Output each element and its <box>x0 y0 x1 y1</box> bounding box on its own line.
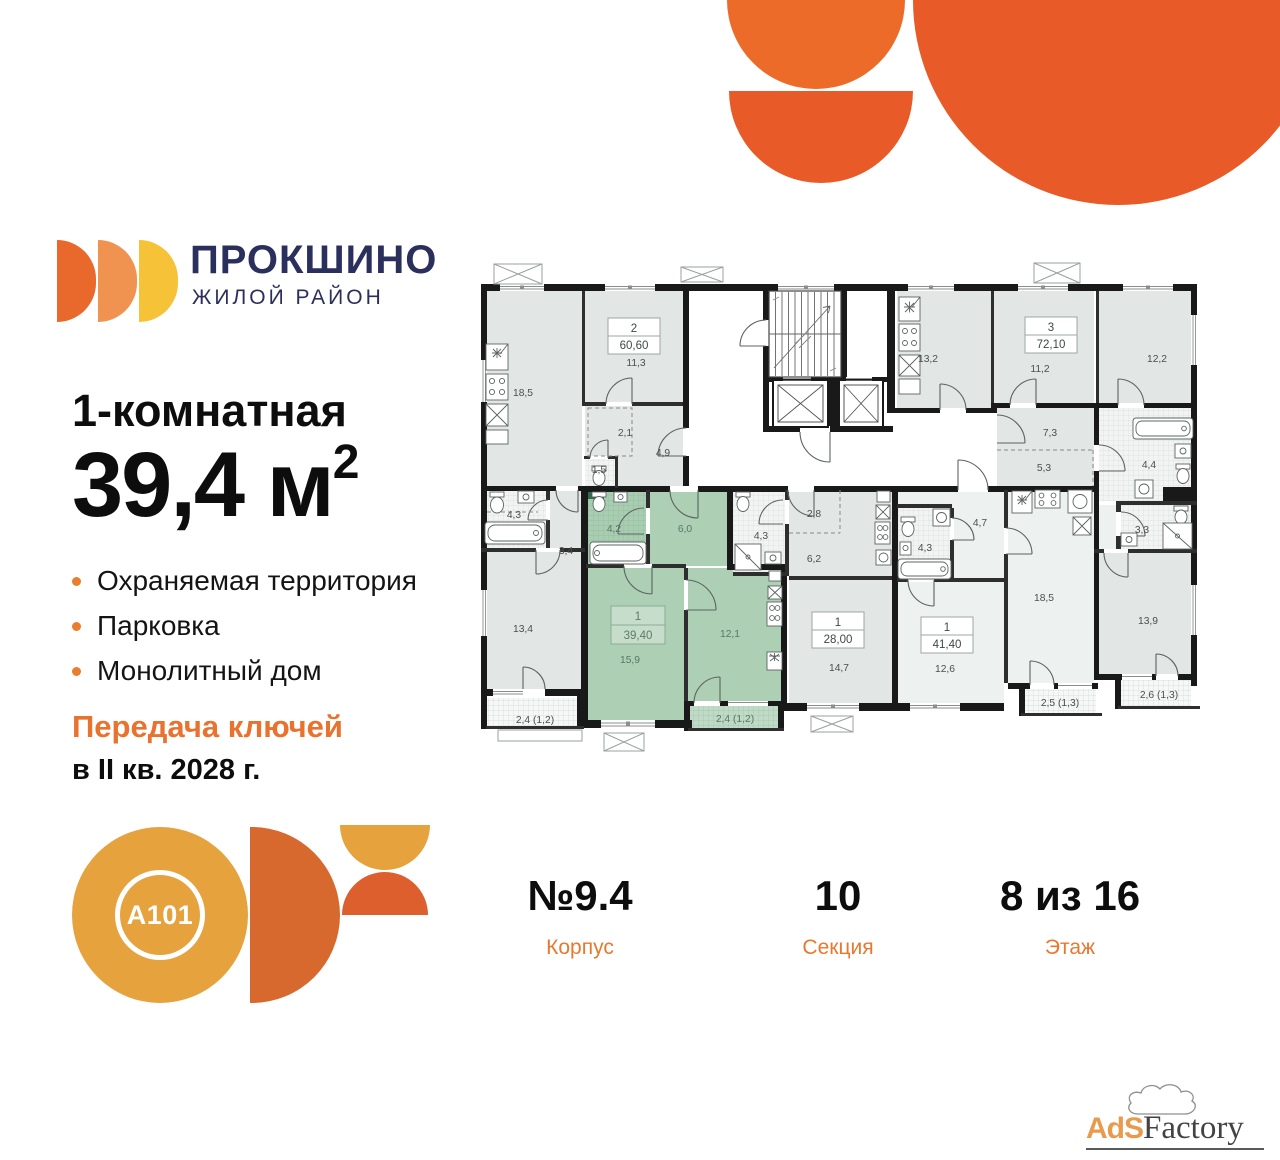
decor-semicircle-small-top <box>727 0 905 89</box>
watermark: AdSFactory <box>1086 1086 1270 1150</box>
watermark-underline <box>1086 1148 1264 1150</box>
a101-halfcircle <box>250 827 340 1003</box>
room-label: 1,5 <box>592 465 607 476</box>
room-label: 18,5 <box>1034 593 1054 604</box>
feature-item: Охраняемая территория <box>72 565 472 597</box>
developer-logo: A101 <box>72 827 432 1007</box>
room-label: 3,3 <box>1135 525 1150 536</box>
room-label: 2,5 (1,3) <box>1041 698 1079 709</box>
a101-ring-label: A101 <box>115 870 205 960</box>
room-label: 12,6 <box>935 664 955 675</box>
room-label: 4,3 <box>918 543 933 554</box>
detail-floor: 8 из 16 Этаж <box>968 872 1172 960</box>
listing-title: 1-комнатная <box>72 388 472 433</box>
area-unit: м <box>267 434 333 536</box>
bullet-icon <box>72 667 81 676</box>
svg-text:72,10: 72,10 <box>1037 339 1066 351</box>
bullet-icon <box>72 577 81 586</box>
logo-shape-orange <box>57 240 96 322</box>
a101-semicircle-orange <box>342 872 428 915</box>
svg-text:2: 2 <box>631 323 637 335</box>
apartment-box-2room: 2 60,60 <box>608 318 660 354</box>
feature-text: Охраняемая территория <box>97 565 417 596</box>
room-label: 6,0 <box>678 524 693 535</box>
floor-value: 8 из 16 <box>968 872 1172 920</box>
room-label: 2,6 (1,3) <box>1140 690 1178 701</box>
room-label: 7,3 <box>1043 428 1058 439</box>
room-label: 4,7 <box>973 518 988 529</box>
room-label: 4,3 <box>754 531 769 542</box>
svg-text:3: 3 <box>1048 322 1054 334</box>
apartment-box-highlighted: 1 39,40 <box>611 606 665 644</box>
room-label: 2,1 <box>618 428 633 439</box>
room-label: 2,8 <box>807 509 822 520</box>
decor-circle-large <box>913 0 1280 205</box>
room-label: 14,7 <box>829 663 849 674</box>
room-label: 12,2 <box>1147 354 1167 365</box>
brand-logo: ПРОКШИНО ЖИЛОЙ РАЙОН <box>57 238 457 324</box>
apartment-box-3room: 3 72,10 <box>1025 317 1077 353</box>
apartment-box-studio: 1 28,00 <box>812 612 864 648</box>
brand-logo-icon <box>57 240 180 322</box>
detail-section: 10 Секция <box>736 872 940 960</box>
room-label: 4,9 <box>656 448 671 459</box>
handover-accent: Передача ключей <box>72 709 472 745</box>
room-label: 11,2 <box>1030 364 1050 375</box>
room-label: 3,4 <box>559 546 574 557</box>
svg-text:39,40: 39,40 <box>624 630 653 642</box>
listing-info: 1-комнатная 39,4 м2 Охраняемая территори… <box>72 388 472 787</box>
svg-text:1: 1 <box>835 617 841 629</box>
room-label: 11,3 <box>626 358 646 369</box>
detail-building: №9.4 Корпус <box>478 872 682 960</box>
ad-poster: { "brand": {"name": "ПРОКШИНО", "tagline… <box>0 0 1280 1160</box>
svg-text:60,60: 60,60 <box>620 340 649 352</box>
room-label: 13,4 <box>513 624 533 635</box>
staircase <box>769 291 841 377</box>
feature-text: Монолитный дом <box>97 655 322 686</box>
listing-area: 39,4 м2 <box>72 439 472 531</box>
room-label: 2,4 (1,2) <box>716 714 754 725</box>
brand-name: ПРОКШИНО <box>190 238 437 283</box>
a101-semicircle-yellow <box>340 825 430 870</box>
building-label: Корпус <box>478 936 682 960</box>
brand-tagline: ЖИЛОЙ РАЙОН <box>192 286 384 310</box>
svg-text:41,40: 41,40 <box>933 639 962 651</box>
section-label: Секция <box>736 936 940 960</box>
decor-semicircle-small-bottom <box>729 91 913 183</box>
room-label: 18,5 <box>513 388 533 399</box>
feature-list: Охраняемая территория Парковка Монолитны… <box>72 565 472 687</box>
room-label: 12,1 <box>720 629 740 640</box>
feature-item: Монолитный дом <box>72 655 472 687</box>
room-label: 15,9 <box>620 655 640 666</box>
building-value: №9.4 <box>478 872 682 920</box>
room-label: 4,2 <box>607 524 622 535</box>
area-sup: 2 <box>333 436 360 489</box>
apartment-box-1room: 1 41,40 <box>921 617 973 653</box>
feature-text: Парковка <box>97 610 220 641</box>
section-value: 10 <box>736 872 940 920</box>
room-label: 6,2 <box>807 554 822 565</box>
svg-text:1: 1 <box>635 611 641 623</box>
room-label: 4,3 <box>507 510 522 521</box>
room-label: 5,3 <box>1037 463 1052 474</box>
feature-item: Парковка <box>72 610 472 642</box>
svg-text:1: 1 <box>944 622 950 634</box>
room-label: 4,4 <box>1142 460 1157 471</box>
bullet-icon <box>72 622 81 631</box>
room-label: 13,9 <box>1138 616 1158 627</box>
floor-plan: 18,5 11,3 2,1 4,9 1,5 4,3 3,4 13,4 2,4 (… <box>478 260 1200 765</box>
handover-date: в II кв. 2028 г. <box>72 754 472 787</box>
cloud-icon <box>1124 1080 1214 1120</box>
room-label: 2,4 (1,2) <box>516 715 554 726</box>
svg-text:28,00: 28,00 <box>824 634 853 646</box>
logo-shape-yellow <box>139 240 178 322</box>
area-value: 39,4 <box>72 434 243 536</box>
logo-shape-light-orange <box>98 240 137 322</box>
floor-label: Этаж <box>968 936 1172 960</box>
room-label: 13,2 <box>918 354 938 365</box>
elevators <box>773 379 883 428</box>
